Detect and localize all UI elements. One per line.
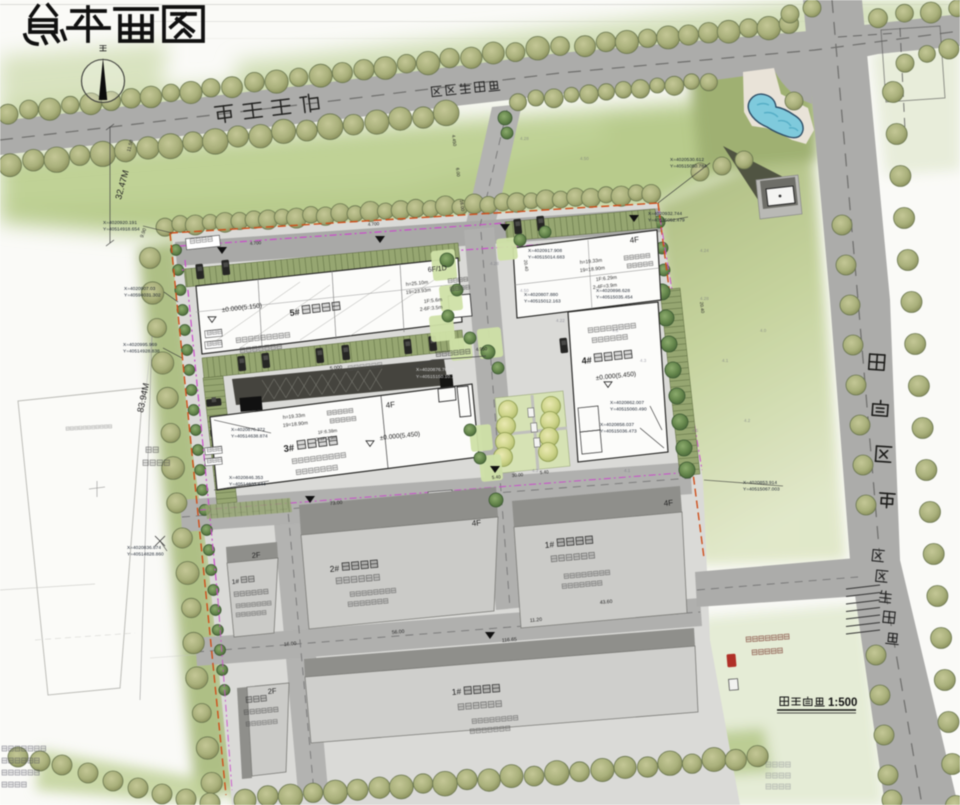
svg-text:Y=40514828.860: Y=40514828.860 xyxy=(127,552,164,558)
svg-text:Y=40515014.683: Y=40515014.683 xyxy=(528,255,565,261)
svg-text:11.20: 11.20 xyxy=(530,617,543,624)
svg-text:5.40: 5.40 xyxy=(540,469,550,475)
svg-text:5#: 5# xyxy=(289,307,300,318)
svg-text:X=4020995.969: X=4020995.969 xyxy=(123,342,157,348)
svg-text:X=4020858.037: X=4020858.037 xyxy=(600,422,634,428)
svg-text:X=4020807.880: X=4020807.880 xyxy=(524,292,558,298)
svg-text:3#: 3# xyxy=(283,443,296,455)
svg-text:Y=40515067.003: Y=40515067.003 xyxy=(743,487,780,493)
svg-text:2#: 2# xyxy=(329,563,340,574)
svg-text:4.28: 4.28 xyxy=(700,296,709,301)
svg-text:X=4020876.76-40: X=4020876.76-40 xyxy=(416,367,455,373)
svg-text:4.950: 4.950 xyxy=(476,346,488,352)
svg-text:Y=40515060.490: Y=40515060.490 xyxy=(610,407,647,413)
svg-text:2F: 2F xyxy=(251,550,261,560)
svg-text:4F: 4F xyxy=(471,518,481,528)
svg-text:2F: 2F xyxy=(267,686,277,696)
svg-text:Y=40514918.654: Y=40514918.654 xyxy=(103,227,140,233)
svg-text:4.2: 4.2 xyxy=(744,418,751,423)
svg-text:4F: 4F xyxy=(629,235,639,245)
svg-text:4.3: 4.3 xyxy=(640,358,647,363)
svg-text:4F: 4F xyxy=(663,498,673,508)
svg-text:Y=40515150.10.1: Y=40515150.10.1 xyxy=(416,374,454,380)
svg-text:4.1: 4.1 xyxy=(722,358,729,363)
svg-text:30.00: 30.00 xyxy=(512,472,524,478)
svg-text:4F: 4F xyxy=(385,400,395,410)
svg-text:1#: 1# xyxy=(232,578,240,586)
svg-text:4.3: 4.3 xyxy=(532,468,539,473)
svg-text:56.00: 56.00 xyxy=(392,629,405,636)
svg-text:Y=40514928.838: Y=40514928.838 xyxy=(123,349,160,355)
svg-text:4.28: 4.28 xyxy=(520,136,529,141)
svg-text:4.1: 4.1 xyxy=(624,468,631,473)
svg-text:5.40: 5.40 xyxy=(492,474,502,480)
svg-text:4.700: 4.700 xyxy=(368,221,380,227)
svg-text:43.60: 43.60 xyxy=(600,599,613,606)
svg-text:Y=40515036.473: Y=40515036.473 xyxy=(600,429,637,435)
svg-text:X=4020846.353: X=4020846.353 xyxy=(229,475,263,481)
svg-text:4.24: 4.24 xyxy=(700,248,709,253)
svg-text:4.28: 4.28 xyxy=(490,261,499,266)
svg-text:4.5: 4.5 xyxy=(692,428,699,433)
svg-text:4.50: 4.50 xyxy=(580,156,589,161)
svg-text:X=4020530.612: X=4020530.612 xyxy=(670,157,704,163)
svg-text:4.22: 4.22 xyxy=(556,318,565,323)
svg-text:X=4020920.191: X=4020920.191 xyxy=(103,220,137,226)
svg-text:1#: 1# xyxy=(451,686,461,697)
svg-text:X=4020907.03: X=4020907.03 xyxy=(124,286,156,292)
svg-text:Y=40515012.163: Y=40515012.163 xyxy=(524,299,561,305)
svg-text:73.00: 73.00 xyxy=(330,500,343,507)
svg-text:Y=40515035.454: Y=40515035.454 xyxy=(596,295,633,301)
svg-text:16.00: 16.00 xyxy=(284,641,297,648)
svg-text:Y=40594031.302: Y=40594031.302 xyxy=(124,293,161,299)
svg-text:X=4020932.744: X=4020932.744 xyxy=(648,211,682,217)
svg-text:4.0: 4.0 xyxy=(760,328,767,333)
svg-text:Y=40514638.874: Y=40514638.874 xyxy=(231,434,268,440)
svg-text:4#: 4# xyxy=(581,355,592,366)
svg-text:X=4020917.908: X=4020917.908 xyxy=(528,248,562,254)
svg-text:1#: 1# xyxy=(544,539,555,550)
svg-text:Y=40515050.784: Y=40515050.784 xyxy=(670,164,707,170)
svg-text:X=4020862.007: X=4020862.007 xyxy=(610,400,644,406)
svg-text:1:500: 1:500 xyxy=(828,697,857,709)
svg-text:4.700: 4.700 xyxy=(250,240,262,246)
svg-text:X=4020836.874: X=4020836.874 xyxy=(127,545,161,551)
